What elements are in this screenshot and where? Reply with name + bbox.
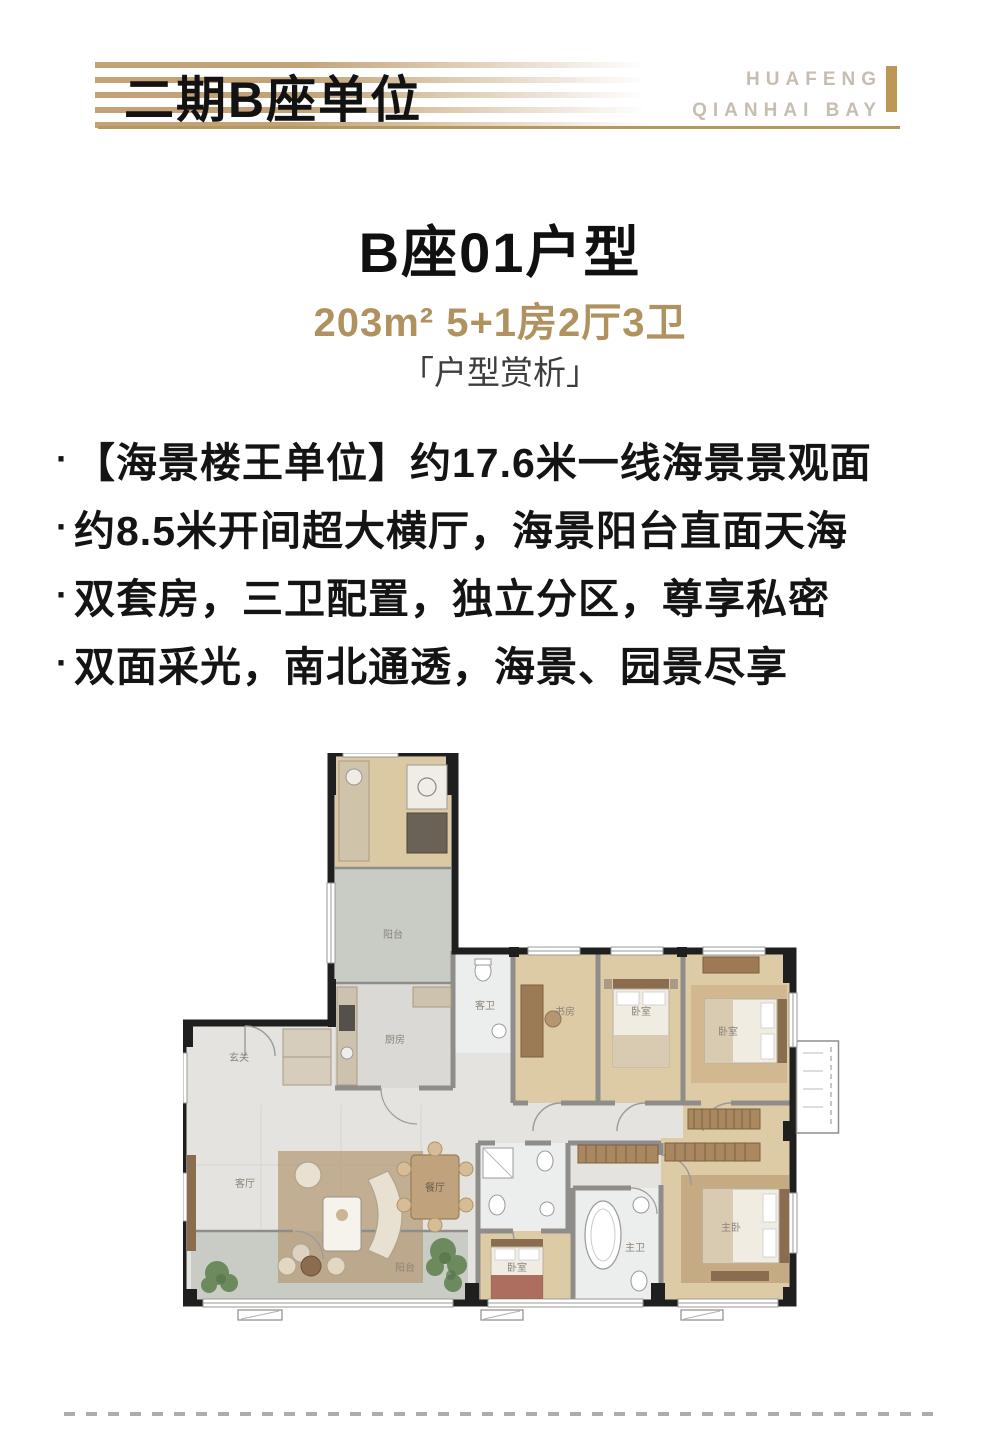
feature-text: 双套房，三卫配置，独立分区，尊享私密 xyxy=(74,565,830,625)
bottom-dashed-divider xyxy=(64,1412,936,1416)
room-label-study: 书房 xyxy=(555,1005,575,1018)
room-label-entry: 玄关 xyxy=(229,1051,249,1064)
room-label-dining: 餐厅 xyxy=(425,1181,445,1194)
room-label-south-balcony: 阳台 xyxy=(395,1261,415,1274)
feature-list: · 【海景楼王单位】约17.6米一线海景景观面 · 约8.5米开间超大横厅，海景… xyxy=(56,425,956,697)
brand-gold-bar xyxy=(886,66,897,112)
section-label: 「户型赏析」 xyxy=(0,346,1000,394)
feature-item: · 双套房，三卫配置，独立分区，尊享私密 xyxy=(56,561,956,629)
page-title: 二期B座单位 xyxy=(124,60,422,132)
bullet-dot: · xyxy=(56,441,68,477)
bullet-dot: · xyxy=(56,509,68,545)
room-label-bedroom-1: 卧室 xyxy=(631,1005,651,1018)
header-divider-line xyxy=(98,126,900,129)
brand-logo-text: HUAFENG QIANHAI BAY xyxy=(692,64,882,126)
room-label-master-bedroom: 主卧 xyxy=(721,1221,741,1234)
room-label-living: 客厅 xyxy=(235,1177,255,1190)
floorplan-floors xyxy=(183,753,793,1303)
brand-line2: QIANHAI BAY xyxy=(692,95,882,126)
floorplan-image: 阳台 厨房 客卫 玄关 书房 卧室 卧室 客厅 餐厅 卧室 主卫 主卧 阳台 xyxy=(183,753,843,1328)
feature-text: 约8.5米开间超大横厅，海景阳台直面天海 xyxy=(74,497,848,557)
feature-text: 【海景楼王单位】约17.6米一线海景景观面 xyxy=(74,429,872,489)
room-label-kitchen: 厨房 xyxy=(385,1033,405,1046)
room-label-north-balcony: 阳台 xyxy=(383,928,403,941)
room-label-master-bath: 主卫 xyxy=(625,1242,645,1254)
unit-spec: 203m² 5+1房2厅3卫 xyxy=(0,290,1000,348)
bullet-dot: · xyxy=(56,577,68,613)
brand-line1: HUAFENG xyxy=(692,64,882,95)
room-label-bedroom-2: 卧室 xyxy=(718,1025,738,1038)
room-label-bedroom-3: 卧室 xyxy=(507,1261,527,1274)
room-label-guest-bath: 客卫 xyxy=(475,999,495,1012)
feature-text: 双面采光，南北通透，海景、园景尽享 xyxy=(74,633,788,693)
feature-item: · 【海景楼王单位】约17.6米一线海景景观面 xyxy=(56,425,956,493)
unit-title: B座01户型 xyxy=(0,208,1000,289)
bullet-dot: · xyxy=(56,645,68,681)
feature-item: · 约8.5米开间超大横厅，海景阳台直面天海 xyxy=(56,493,956,561)
feature-item: · 双面采光，南北通透，海景、园景尽享 xyxy=(56,629,956,697)
